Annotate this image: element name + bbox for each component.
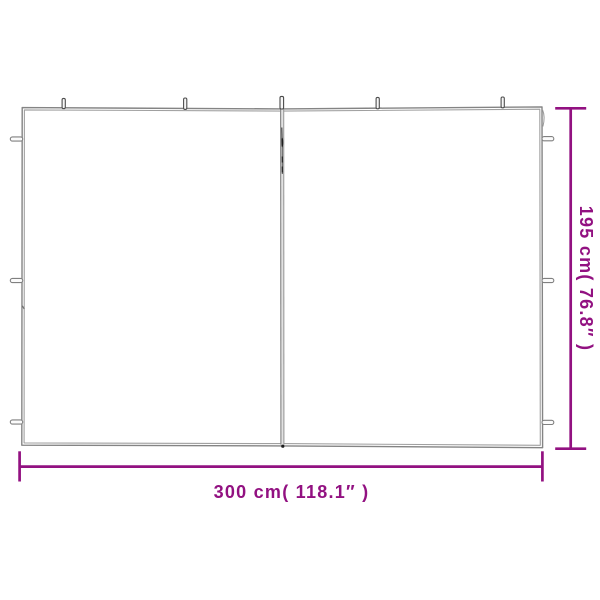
svg-text:300 cm( 118.1″ ): 300 cm( 118.1″ ): [214, 482, 370, 502]
svg-text:195 cm( 76.8″ ): 195 cm( 76.8″ ): [576, 206, 596, 351]
